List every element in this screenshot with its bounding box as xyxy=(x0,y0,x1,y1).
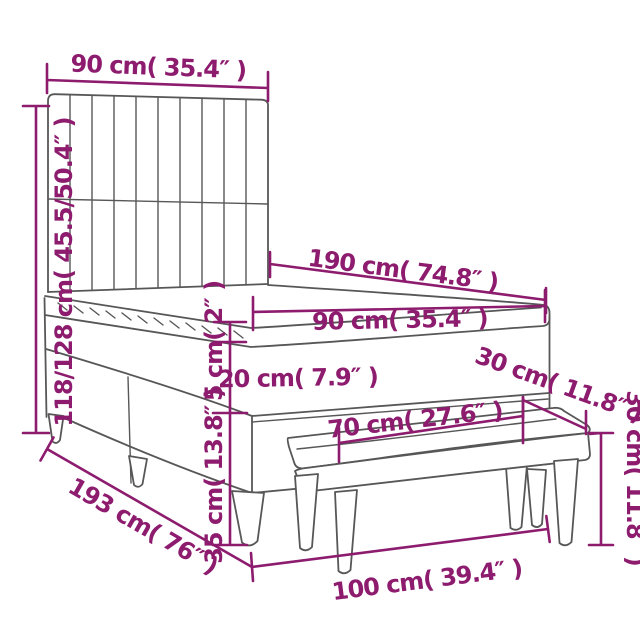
dim-line-bench-height xyxy=(589,433,613,545)
dim-headboard-width: 90 cm( 35.4″ ) xyxy=(47,49,268,101)
bed-leg xyxy=(527,469,546,527)
dim-label-bed-length: 190 cm( 74.8″ ) xyxy=(306,244,499,296)
dimension-diagram: 90 cm( 35.4″ ) 118/128 cm( 45.5/50.4″ ) … xyxy=(0,0,640,640)
bed-leg xyxy=(232,491,264,545)
dim-bed-length: 190 cm( 74.8″ ) xyxy=(270,244,546,313)
dim-label-total-width: 100 cm( 39.4″ ) xyxy=(330,554,523,606)
dim-label-bench-height: 30 cm( 11.8″ ) xyxy=(621,390,640,566)
dim-total-width: 100 cm( 39.4″ ) xyxy=(252,516,550,606)
dim-label-headboard-height: 118/128 cm( 45.5/50.4″ ) xyxy=(50,117,78,426)
dim-headboard-height: 118/128 cm( 45.5/50.4″ ) xyxy=(23,106,78,433)
dim-label-base-height: 35 cm( 13.8″ ) xyxy=(200,388,228,564)
dim-label-total-length: 193 cm( 76″ ) xyxy=(63,472,222,580)
headboard xyxy=(48,94,268,292)
dim-label-mattress-width: 90 cm( 35.4″ ) xyxy=(312,304,488,336)
dim-label-mattress-thickness: 20 cm( 7.9″ ) xyxy=(218,363,378,394)
bench-leg xyxy=(554,459,578,545)
bench-leg xyxy=(335,490,357,573)
dim-label-headboard-width: 90 cm( 35.4″ ) xyxy=(70,49,247,84)
bed-diagram-canvas: 90 cm( 35.4″ ) 118/128 cm( 45.5/50.4″ ) … xyxy=(0,0,640,640)
bed-leg xyxy=(129,456,147,487)
bench-back-leg xyxy=(506,465,527,530)
bench-leg xyxy=(295,474,318,550)
